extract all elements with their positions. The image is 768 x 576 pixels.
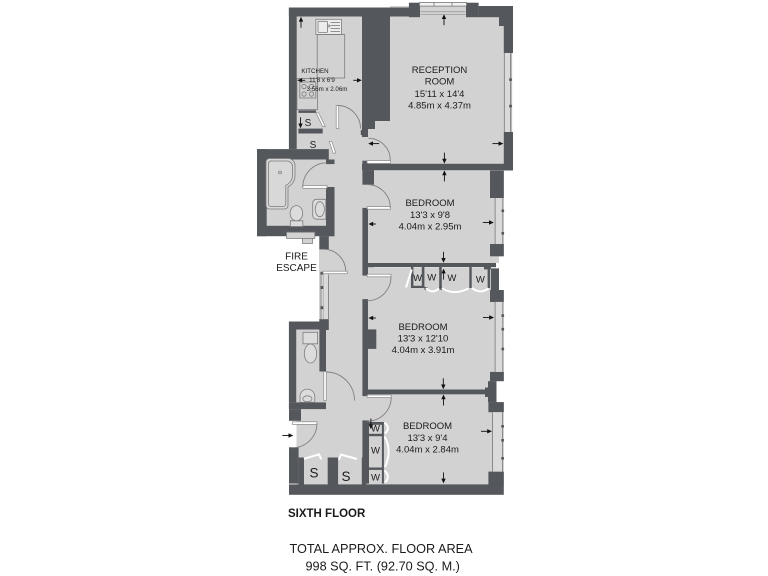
svg-text:13'3 x 9'4: 13'3 x 9'4 bbox=[407, 433, 447, 444]
svg-text:SIXTH FLOOR: SIXTH FLOOR bbox=[288, 508, 366, 520]
svg-text:KITCHEN: KITCHEN bbox=[301, 68, 328, 75]
svg-text:FIRE: FIRE bbox=[285, 251, 308, 262]
svg-text:W: W bbox=[371, 473, 380, 484]
svg-text:998 SQ. FT. (92.70 SQ. M.): 998 SQ. FT. (92.70 SQ. M.) bbox=[305, 559, 459, 573]
svg-text:TOTAL APPROX. FLOOR AREA: TOTAL APPROX. FLOOR AREA bbox=[289, 542, 473, 556]
svg-text:3.56m x 2.06m: 3.56m x 2.06m bbox=[307, 86, 348, 93]
svg-text:W: W bbox=[476, 275, 485, 286]
svg-text:W: W bbox=[371, 446, 380, 457]
svg-text:4.04m x 2.84m: 4.04m x 2.84m bbox=[396, 445, 459, 456]
svg-text:W: W bbox=[371, 424, 380, 435]
svg-text:S: S bbox=[305, 118, 312, 129]
svg-text:BEDROOM: BEDROOM bbox=[403, 421, 452, 432]
svg-text:11'8 x 6'9: 11'8 x 6'9 bbox=[309, 77, 335, 84]
svg-text:S: S bbox=[309, 466, 318, 481]
svg-text:13'3 x 9'8: 13'3 x 9'8 bbox=[410, 210, 450, 221]
svg-text:13'3 x 12'10: 13'3 x 12'10 bbox=[398, 334, 449, 345]
svg-text:S: S bbox=[310, 140, 317, 151]
svg-text:4.85m x 4.37m: 4.85m x 4.37m bbox=[408, 100, 471, 111]
svg-text:4.04m x 3.91m: 4.04m x 3.91m bbox=[392, 345, 455, 356]
svg-text:ROOM: ROOM bbox=[425, 77, 455, 88]
svg-text:W: W bbox=[413, 273, 422, 284]
svg-text:BEDROOM: BEDROOM bbox=[398, 322, 447, 333]
svg-text:15'11 x 14'4: 15'11 x 14'4 bbox=[415, 89, 465, 100]
svg-text:S: S bbox=[341, 469, 350, 484]
svg-text:RECEPTION: RECEPTION bbox=[412, 65, 468, 76]
svg-text:ESCAPE: ESCAPE bbox=[276, 263, 317, 274]
svg-text:BEDROOM: BEDROOM bbox=[405, 198, 454, 209]
svg-text:W: W bbox=[427, 273, 436, 284]
svg-text:4.04m x 2.95m: 4.04m x 2.95m bbox=[399, 222, 462, 233]
svg-text:W: W bbox=[447, 273, 456, 284]
